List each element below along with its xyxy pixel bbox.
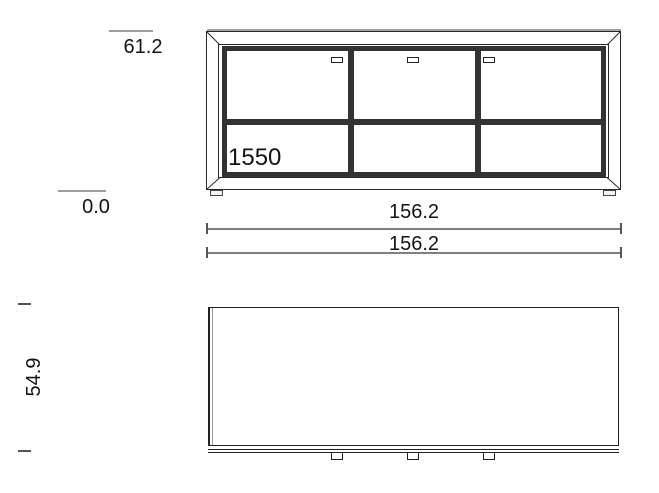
dim-width-inner-tick-right (620, 247, 622, 258)
dim-height-label: 61.2 (115, 36, 171, 58)
dim-width-inner-line (207, 252, 621, 254)
dim-depth-tick-top (18, 303, 31, 305)
front-foot-left (210, 190, 223, 196)
door-divider-vertical-1 (348, 51, 354, 172)
dim-width-outer-tick-right (620, 223, 622, 234)
dim-base-label: 0.0 (68, 196, 124, 218)
plan-view-handle-tab-2 (407, 452, 419, 460)
dim-base-tick-line (58, 190, 106, 192)
door-handle-3 (483, 57, 495, 63)
dim-width-outer-line (207, 228, 621, 230)
dim-height-tick-line (109, 30, 153, 32)
door-divider-vertical-2 (475, 51, 481, 172)
technical-drawing-canvas: 61.2 0.0 1550 156.2 156.2 54.9 (0, 0, 659, 493)
dim-depth-label: 54.9 (23, 337, 43, 417)
plan-view-handle-tab-1 (331, 452, 343, 460)
plan-view-handle-tab-3 (483, 452, 495, 460)
front-foot-right (603, 190, 616, 196)
dim-depth-tick-bottom (18, 450, 31, 452)
dim-width-outer-label: 156.2 (384, 201, 444, 223)
plan-view-outline (208, 307, 619, 446)
door-handle-1 (331, 57, 343, 63)
model-number-label: 1550 (228, 146, 281, 170)
dim-width-inner-tick-left (206, 247, 208, 258)
plan-view-left-inner-line (212, 308, 213, 445)
plan-view-front-edge-line-1 (208, 449, 619, 450)
dim-width-outer-tick-left (206, 223, 208, 234)
door-handle-2 (407, 57, 419, 63)
door-divider-horizontal (227, 119, 601, 125)
